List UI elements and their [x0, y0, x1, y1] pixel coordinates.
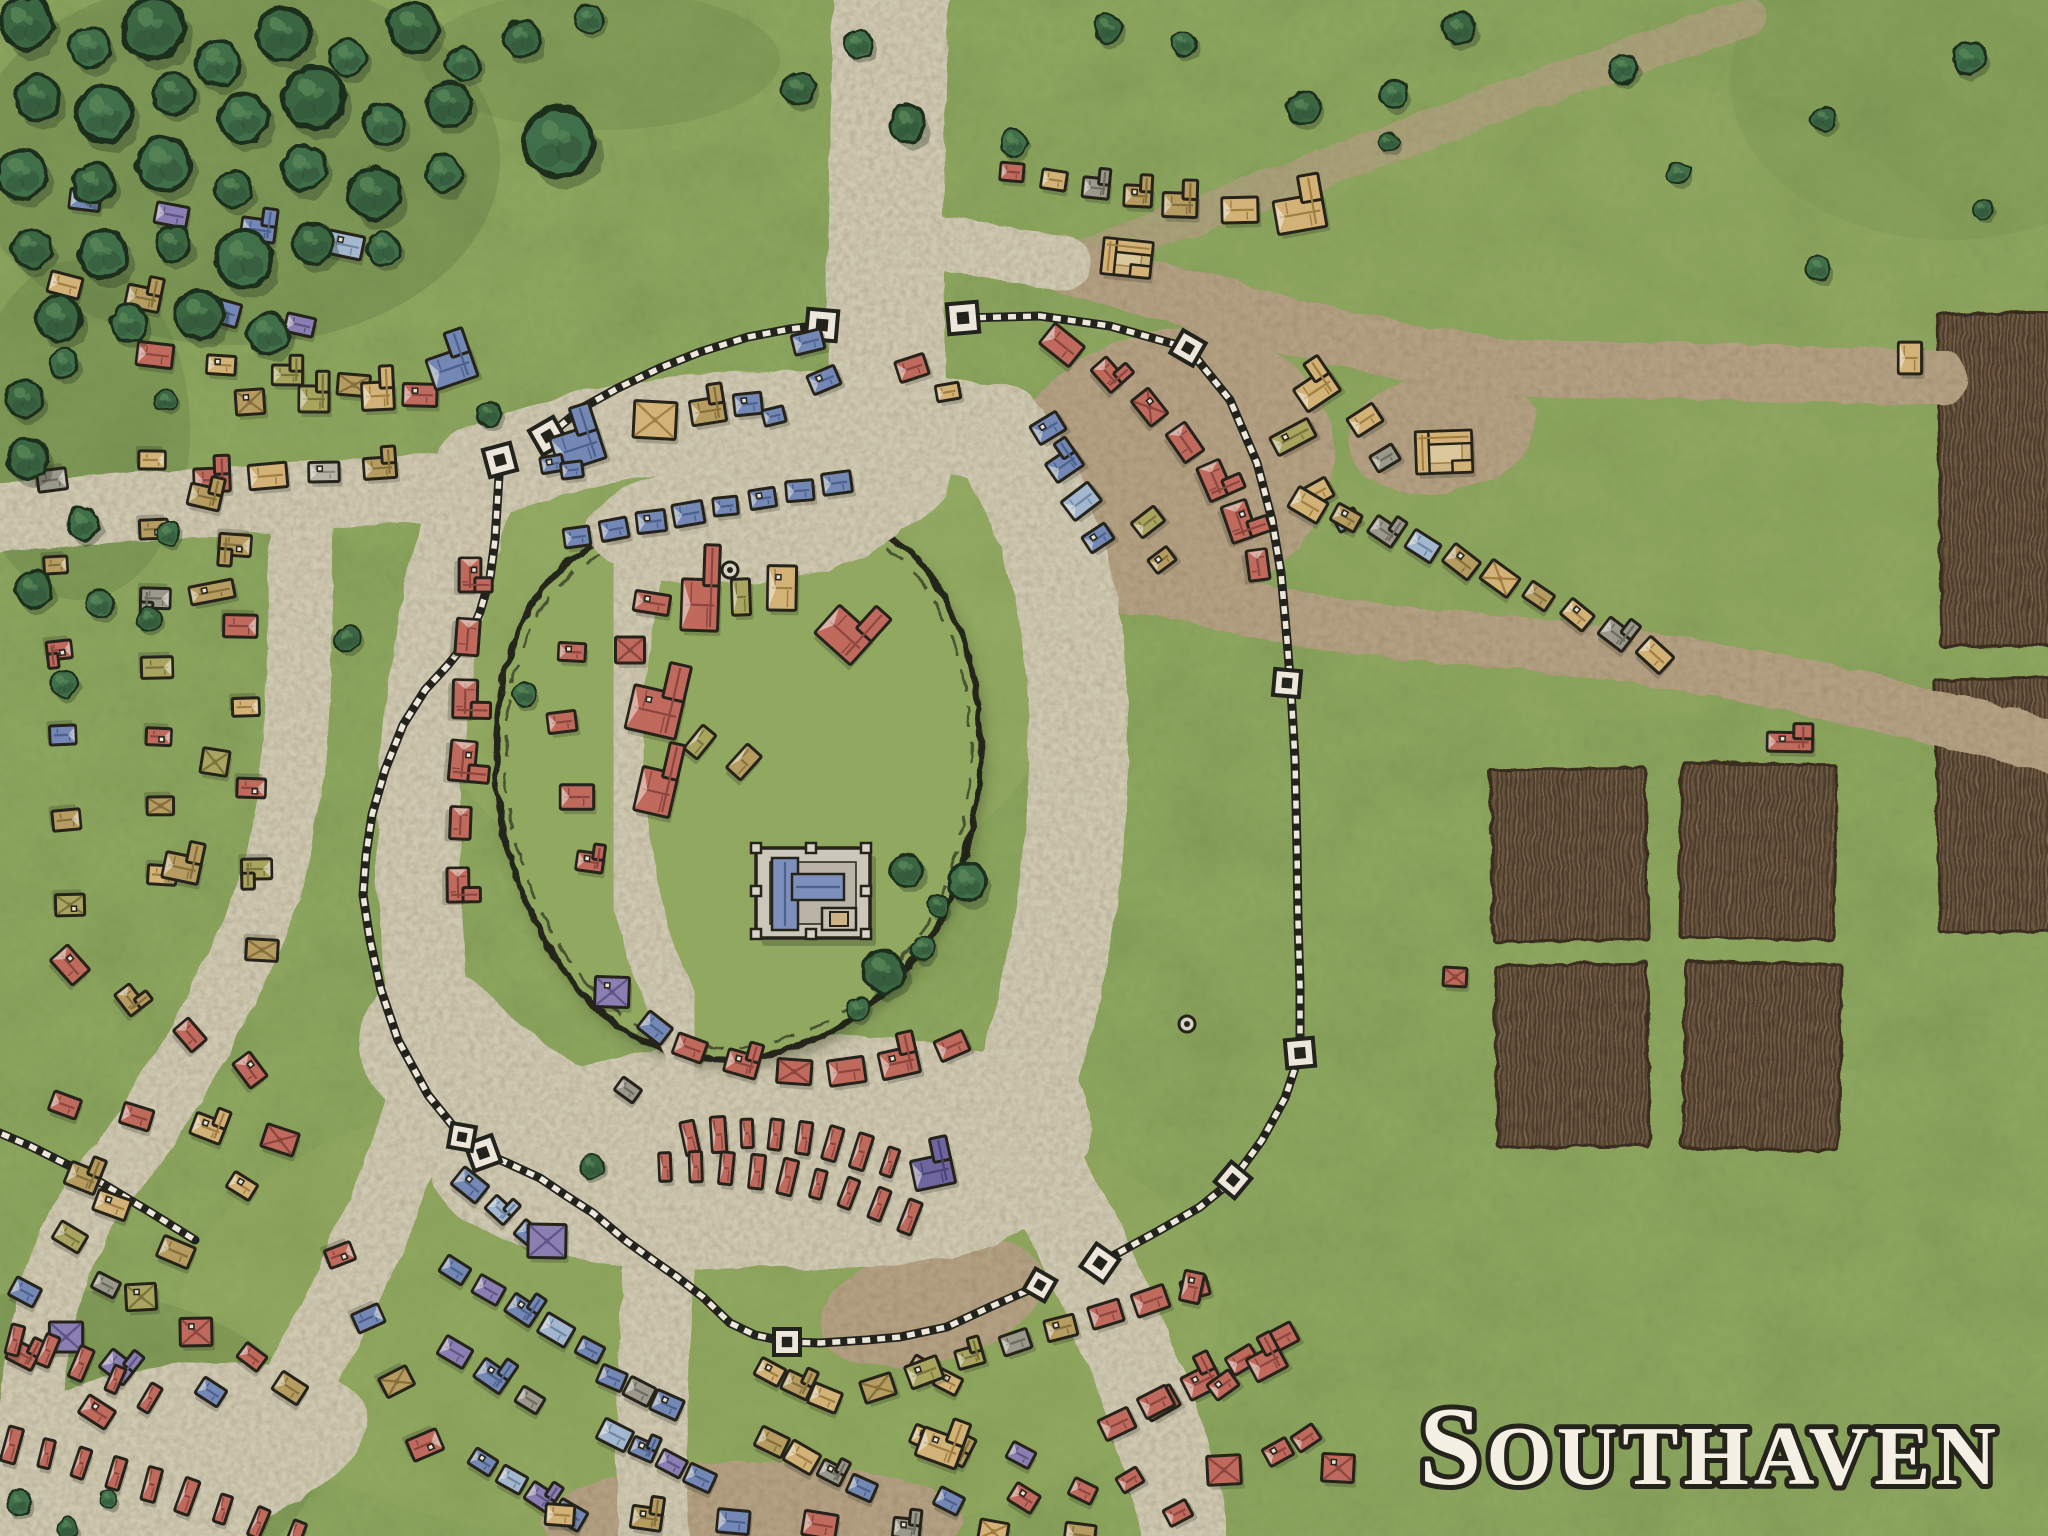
well	[1179, 1016, 1195, 1032]
house	[713, 496, 742, 521]
house	[144, 792, 174, 815]
house	[716, 1509, 753, 1536]
house	[821, 470, 856, 500]
house	[221, 609, 258, 637]
house	[1443, 967, 1470, 992]
house	[199, 748, 233, 782]
southaven-map: SOUTHAVEN	[0, 0, 2048, 1536]
farm-field	[1677, 761, 1834, 939]
house	[545, 1504, 578, 1532]
house	[229, 693, 259, 717]
house	[547, 710, 581, 739]
house	[801, 1510, 842, 1536]
house	[248, 462, 291, 495]
house	[616, 637, 648, 668]
house	[1207, 1455, 1245, 1491]
house	[48, 804, 81, 832]
house	[1241, 549, 1271, 585]
house	[1321, 1453, 1357, 1487]
house	[1063, 1522, 1099, 1536]
house	[776, 1059, 815, 1091]
house	[206, 355, 239, 381]
house	[827, 1056, 870, 1091]
house	[309, 462, 343, 487]
house	[52, 889, 85, 916]
house	[1040, 169, 1071, 197]
market-stall	[999, 162, 1027, 187]
house	[143, 723, 172, 746]
house	[786, 479, 818, 506]
house	[450, 618, 481, 659]
house	[135, 341, 177, 374]
cobblestone-road	[895, 235, 1062, 262]
house	[243, 933, 279, 961]
wall-tower	[774, 1329, 800, 1355]
house	[731, 579, 753, 621]
house	[234, 773, 266, 798]
house	[672, 500, 709, 532]
house	[180, 1318, 215, 1351]
house	[733, 392, 766, 421]
map-canvas: SOUTHAVEN	[0, 0, 2048, 1536]
house	[594, 976, 632, 1012]
house	[560, 785, 596, 814]
house	[40, 551, 67, 574]
wall-tower	[448, 1123, 476, 1151]
manor-house	[1415, 430, 1476, 479]
house	[1898, 342, 1924, 379]
farm-field	[1493, 962, 1648, 1148]
market-stall	[689, 1151, 705, 1187]
keep	[751, 843, 876, 946]
house	[138, 652, 173, 679]
house	[235, 389, 268, 421]
house	[558, 642, 589, 666]
house	[767, 566, 799, 616]
house	[563, 526, 594, 554]
farm-field	[1681, 960, 1840, 1150]
house	[136, 446, 166, 469]
house	[46, 720, 76, 745]
well	[722, 562, 738, 578]
house	[633, 401, 680, 445]
manor-house	[1100, 238, 1156, 284]
wall-tower	[1285, 1038, 1315, 1068]
house	[444, 806, 471, 842]
wall-tower	[1273, 669, 1301, 697]
wall-tower	[947, 302, 980, 335]
house	[749, 487, 781, 515]
house	[125, 1283, 160, 1316]
dirt-road	[1446, 372, 1448, 426]
house	[528, 1224, 569, 1263]
wall-tower	[483, 443, 517, 477]
house	[1222, 197, 1262, 228]
cobblestone-road	[650, 1230, 660, 1536]
house	[636, 509, 670, 539]
farm-field	[1490, 766, 1647, 941]
